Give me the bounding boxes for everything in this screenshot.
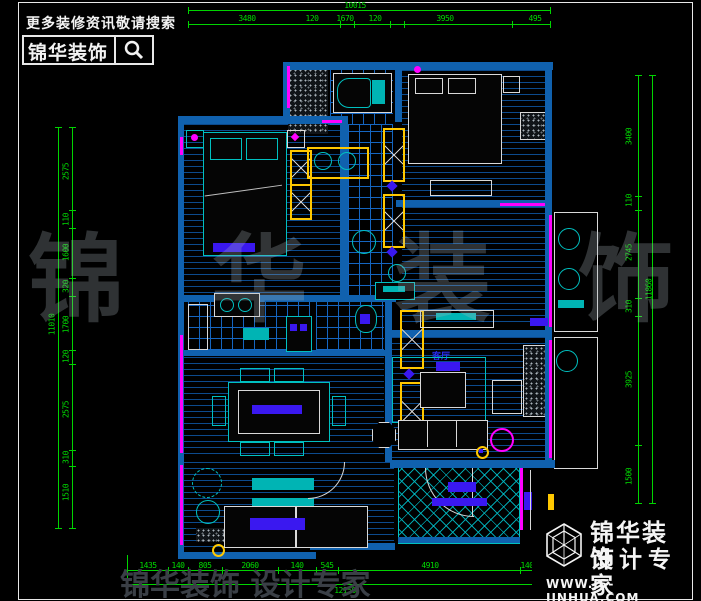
dim-label: 3480: [227, 14, 267, 23]
footer-url: WWW.JS-JINHUA.COM: [546, 577, 690, 601]
bay-label: [530, 318, 548, 326]
dim-right-total: 11860: [645, 271, 654, 309]
fridge-marker: [290, 324, 297, 331]
wall: [545, 62, 552, 207]
header-tagline: 更多装修资讯敬请搜索: [26, 13, 176, 33]
dim-label: 1670: [331, 14, 359, 23]
tick: [635, 316, 642, 317]
dim-left-total: 11010: [48, 306, 57, 344]
desk-label: [383, 286, 405, 292]
dim-label: 120: [298, 14, 326, 23]
burner: [238, 298, 252, 312]
label-bar: [213, 243, 255, 252]
wall: [395, 62, 402, 122]
tick: [649, 503, 656, 504]
dim-left-seg-line: [72, 127, 73, 528]
window: [520, 468, 523, 530]
fridge-marker: [300, 324, 307, 331]
dim-top-total-line: [188, 10, 550, 11]
tick: [404, 21, 405, 28]
dim-label: 1600: [62, 236, 71, 270]
wall: [398, 537, 520, 543]
kitchen-sink: [243, 328, 269, 340]
wall: [390, 460, 555, 468]
dresser: [430, 180, 492, 196]
dim-label: 3400: [625, 120, 634, 154]
wall: [178, 552, 316, 559]
dim-label: 1700: [62, 308, 71, 342]
dim-label: 2575: [62, 393, 71, 427]
dim-label: 310: [625, 290, 634, 324]
balcony-label: [252, 478, 314, 490]
plant: [196, 500, 220, 524]
dim-label: 4910: [412, 561, 448, 570]
tick: [635, 445, 642, 446]
sink: [338, 152, 356, 170]
chair: [274, 368, 304, 382]
marker-dot: [479, 449, 483, 453]
chair: [240, 368, 270, 382]
tick: [188, 7, 189, 14]
tick: [635, 210, 642, 211]
bed3-label: [432, 498, 487, 506]
console-label: [436, 313, 476, 320]
chair: [388, 264, 406, 282]
dining-label: [252, 405, 302, 414]
dim-label: 320: [62, 270, 71, 304]
window: [549, 340, 552, 458]
lamp-dot: [414, 66, 421, 73]
bathtub-basin: [337, 78, 371, 108]
sofa-seam: [456, 421, 457, 447]
tick: [512, 21, 513, 28]
footer-logo-block: 锦华装饰 设计专家 WWW.JS-JINHUA.COM: [532, 514, 690, 594]
window: [180, 335, 183, 453]
dim-label: 2745: [625, 236, 634, 270]
dim-label: 1510: [62, 476, 71, 510]
dim-label: 3950: [425, 14, 465, 23]
header-brand-box: 锦华装饰: [22, 35, 154, 65]
dim-label: 310: [62, 441, 71, 475]
cube-hexagon-logo: [544, 522, 584, 568]
toilet-seat: [360, 314, 370, 324]
tick: [188, 21, 189, 28]
dim-label: 3925: [625, 363, 634, 397]
sill-line: [530, 470, 531, 530]
bay-label: [558, 300, 584, 308]
dim-right-seg-line: [638, 75, 639, 503]
pillow: [210, 138, 242, 160]
sill-mark: [548, 494, 554, 510]
coffee-table-magenta: [490, 428, 514, 452]
plant: [192, 468, 222, 498]
header-brand-text: 锦华装饰: [24, 37, 114, 63]
armchair: [558, 268, 580, 290]
door-leaf: [472, 468, 473, 516]
tick: [390, 21, 391, 28]
counter: [188, 304, 208, 350]
tick: [69, 127, 76, 128]
burner: [220, 298, 234, 312]
side-table-octagon: [372, 422, 396, 448]
door-accent: [322, 120, 342, 123]
dim-top-seg-line: [188, 24, 550, 25]
tick: [69, 528, 76, 529]
chair: [240, 442, 270, 456]
armchair: [556, 350, 578, 372]
watermark-bottom: 锦华装饰 设计专家: [120, 560, 370, 601]
tick: [55, 528, 62, 529]
search-cell: [114, 37, 152, 63]
dim-label: 120: [361, 14, 389, 23]
tick: [649, 75, 656, 76]
cad-floorplan-screenshot: 更多装修资讯敬请搜索 锦华装饰 10015 3480 120 1670 120 …: [0, 0, 701, 601]
chair: [274, 442, 304, 456]
wardrobe-cell: [383, 128, 405, 182]
window: [180, 137, 183, 155]
sofa-seam: [427, 421, 428, 447]
dim-label: 120: [62, 340, 71, 374]
tick: [550, 7, 551, 14]
magnifier-icon: [123, 39, 145, 61]
chair: [332, 396, 346, 426]
armchair: [492, 380, 522, 414]
dim-label: 495: [515, 14, 555, 23]
dim-label: 110: [625, 184, 634, 218]
window: [500, 203, 545, 206]
chair: [212, 396, 226, 426]
granite-pier-top: [288, 68, 328, 134]
sink: [314, 152, 332, 170]
storage-cabinet: [296, 506, 368, 548]
window: [287, 66, 290, 108]
closet-cell: [290, 184, 312, 220]
bed3-label: [448, 482, 476, 492]
armchair: [558, 228, 580, 250]
wall: [340, 116, 348, 300]
wardrobe-cell: [383, 194, 405, 248]
window: [180, 465, 183, 545]
bathtub-ledge: [372, 80, 385, 104]
floor-study: [402, 207, 545, 327]
storage-label: [250, 518, 305, 530]
dim-left-total-line: [58, 127, 59, 528]
tick: [55, 127, 62, 128]
tick: [635, 503, 642, 504]
pillow: [448, 78, 476, 94]
dim-label: 110: [62, 203, 71, 237]
nightstand: [503, 76, 520, 93]
basin: [352, 230, 376, 254]
pillow: [415, 78, 443, 94]
tv-cabinet: [420, 372, 466, 408]
tick: [635, 298, 642, 299]
lamp-dot: [191, 134, 198, 141]
dim-top-total: 10015: [330, 1, 380, 10]
tick: [635, 75, 642, 76]
fridge: [286, 316, 312, 352]
window: [549, 215, 552, 327]
dim-label: 1500: [625, 460, 634, 494]
tick: [635, 196, 642, 197]
wall: [178, 295, 396, 302]
sofa: [398, 420, 488, 450]
dim-label: 2575: [62, 155, 71, 189]
pillow: [246, 138, 278, 160]
